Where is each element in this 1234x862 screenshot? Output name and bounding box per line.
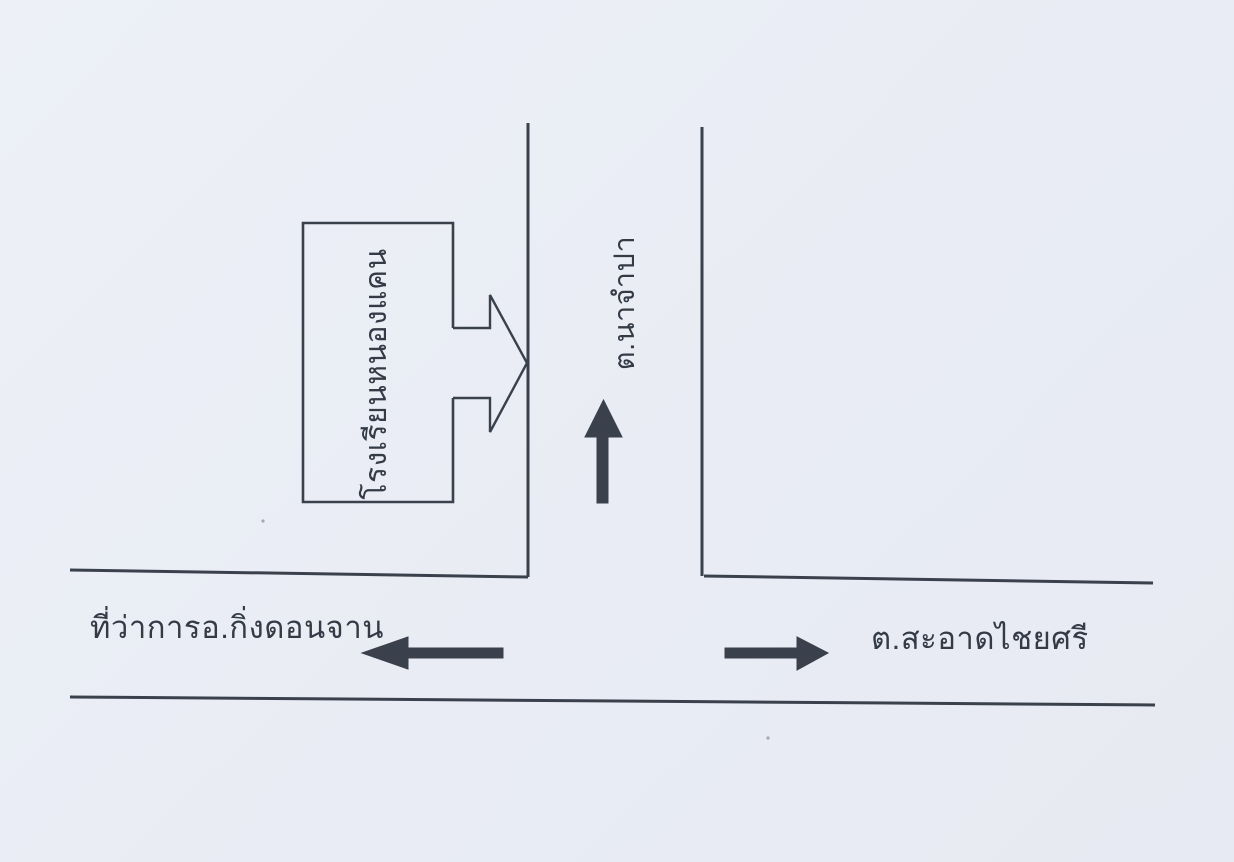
scan-speck (766, 736, 769, 739)
map-drawing-layer (0, 0, 1234, 862)
right-destination-label: ต.สะอาดไชยศรี (871, 619, 1089, 659)
vertical-road-label: ต.นาจำปา (605, 213, 645, 393)
direction-map: โรงเรียนหนองแคน ต.นาจำปา ที่ว่าการอ.กิ่ง… (0, 0, 1234, 862)
scan-speck (261, 519, 264, 522)
left-destination-label: ที่ว่าการอ.กิ่งดอนจาน (90, 608, 384, 648)
right-arrow-icon (725, 637, 828, 670)
up-arrow-icon (585, 400, 622, 503)
school-entrance-arrow-icon (453, 295, 527, 432)
horizontal-road-bottom-edge (70, 697, 1155, 705)
horizontal-road-top-edge-right (704, 576, 1153, 583)
school-box-label: โรงเรียนหนองแคน (357, 241, 397, 507)
horizontal-road-top-edge-left (70, 570, 528, 577)
